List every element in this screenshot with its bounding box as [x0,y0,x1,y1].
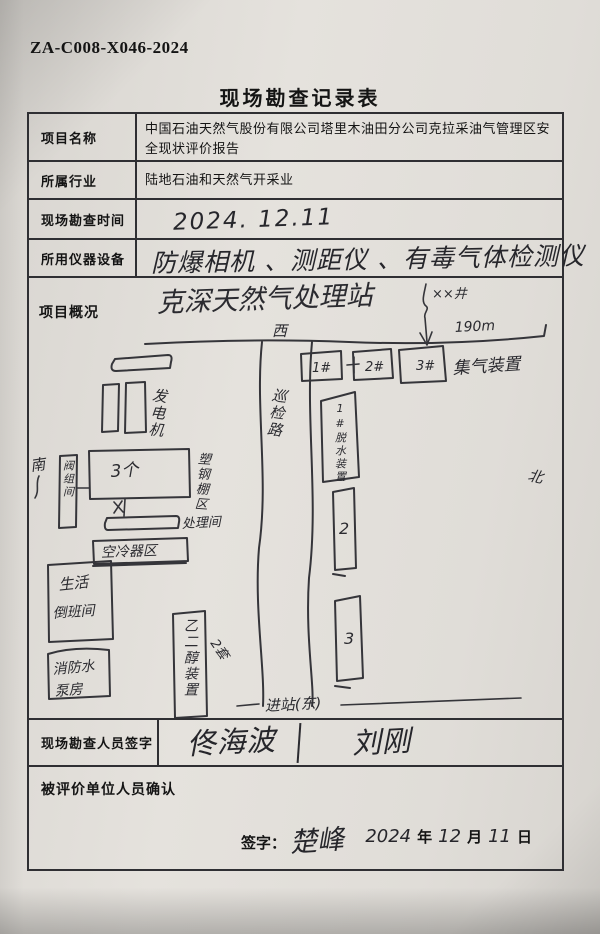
generator-box-2 [125,382,146,433]
date-year-unit: 年 [417,830,432,846]
entrance-dash-left [237,704,259,706]
well-label: ××井 [432,287,468,302]
industry-value: 陆地石油和天然气开采业 [137,162,562,198]
dehydrator-3-label: 3 [344,629,354,648]
entrance-label: 进站(东) [264,694,322,715]
surveyor-signature-label: 现场勘查人员签字 [29,720,159,765]
date-day-value: 11 [488,826,511,847]
stray-pen-stroke [296,722,301,762]
shed-label: 塑钢棚区 [191,451,211,512]
treat-label: 处理间 [181,515,223,532]
unit-confirmation-label: 被评价单位人员确认 [41,779,176,799]
gather-label: 集气装置 [452,354,523,379]
project-name-value: 中国石油天然气股份有限公司塔里木油田分公司克拉采油气管理区安全现状评价报告 [137,114,562,160]
living-label-2: 倒班间 [52,603,97,622]
compass-south: 南 [29,455,48,475]
surveyor-signature-1: 佟海波 [186,718,277,766]
row-project-name: 项目名称 中国石油天然气股份有限公司塔里木油田分公司克拉采油气管理区安全现状评价… [29,114,562,160]
industry-label: 所属行业 [29,162,137,198]
generator-label: 发电机 [145,387,169,440]
road-label: 巡检路 [263,387,288,440]
gather-box-1-label: 1# [312,361,331,376]
confirmation-signature: 楚峰 [289,830,344,855]
row-surveyor-signature: 现场勘查人员签字 佟海波 刘刚 [29,718,562,765]
road-left-line [258,342,264,706]
project-name-label: 项目名称 [29,114,137,160]
dehydrator-2-label: 2 [339,519,349,538]
road-right-line [308,342,313,706]
glycol-label: 乙二醇装置 [182,618,198,698]
valve-room-label: 阀组间 [61,460,75,499]
date-day-unit: 日 [517,830,532,846]
sketch-title: 克深天然气处理站 [156,280,377,319]
surveyor-signature-2: 刘刚 [350,719,411,766]
date-month-value: 12 [438,826,461,847]
form-title: 现场勘查记录表 [0,82,600,111]
big-building [89,449,190,499]
treat-stem [124,499,125,516]
dehydrator-1-label: 1#脱水装置 [333,402,347,484]
fire-label-1: 消防水 [52,658,96,678]
row-project-overview: 项目概况 克深天然气处理站 西 ××井 190m 1# 2# 3# [29,276,562,718]
document-number: ZA-C008-X046-2024 [30,38,189,58]
living-label-1: 生活 [58,573,92,594]
survey-time-handwritten: 2024. 12.11 [172,200,334,240]
scribble-cross [114,501,123,513]
record-form-table: 项目名称 中国石油天然气股份有限公司塔里木油田分公司克拉采油气管理区安全现状评价… [27,112,564,871]
distance-label: 190m [454,318,495,336]
gather-box-2-label: 2# [365,360,384,375]
big-building-count: 3个 [110,460,141,482]
row-industry: 所属行业 陆地石油和天然气开采业 [29,160,562,198]
instruments-label: 所用仪器设备 [29,240,137,276]
confirmation-date: 2024年12月11日 [365,826,538,847]
glycol-count: 2套 [207,637,233,665]
compass-north: 北 [526,466,546,487]
aircooler-label: 空冷器区 [101,543,160,561]
row-unit-confirmation: 被评价单位人员确认 签字： 楚峰 2024年12月11日 [29,765,562,869]
small-bar-building [112,355,172,371]
site-sketch: 克深天然气处理站 西 ××井 190m 1# 2# 3# 集气装置 [29,278,558,718]
row-instruments: 所用仪器设备 防爆相机 、测距仪 、有毒气体检测仪 [29,238,562,276]
gather-box-3-label: 3# [416,359,435,374]
date-year-value: 2024 [365,826,411,847]
fire-label-2: 泵房 [54,682,84,700]
document-photo: ZA-C008-X046-2024 现场勘查记录表 项目名称 中国石油天然气股份… [0,0,600,934]
sign-here-label: 签字： [241,832,286,853]
south-mark [35,476,39,498]
well-arrow-line [423,284,427,342]
treat-bar [105,516,179,530]
survey-time-label: 现场勘查时间 [29,200,137,238]
date-month-unit: 月 [467,830,482,846]
row-survey-time: 现场勘查时间 2024. 12.11 [29,198,562,238]
generator-box-1 [102,384,119,432]
compass-west: 西 [272,322,289,340]
entrance-dash-right [341,698,521,705]
